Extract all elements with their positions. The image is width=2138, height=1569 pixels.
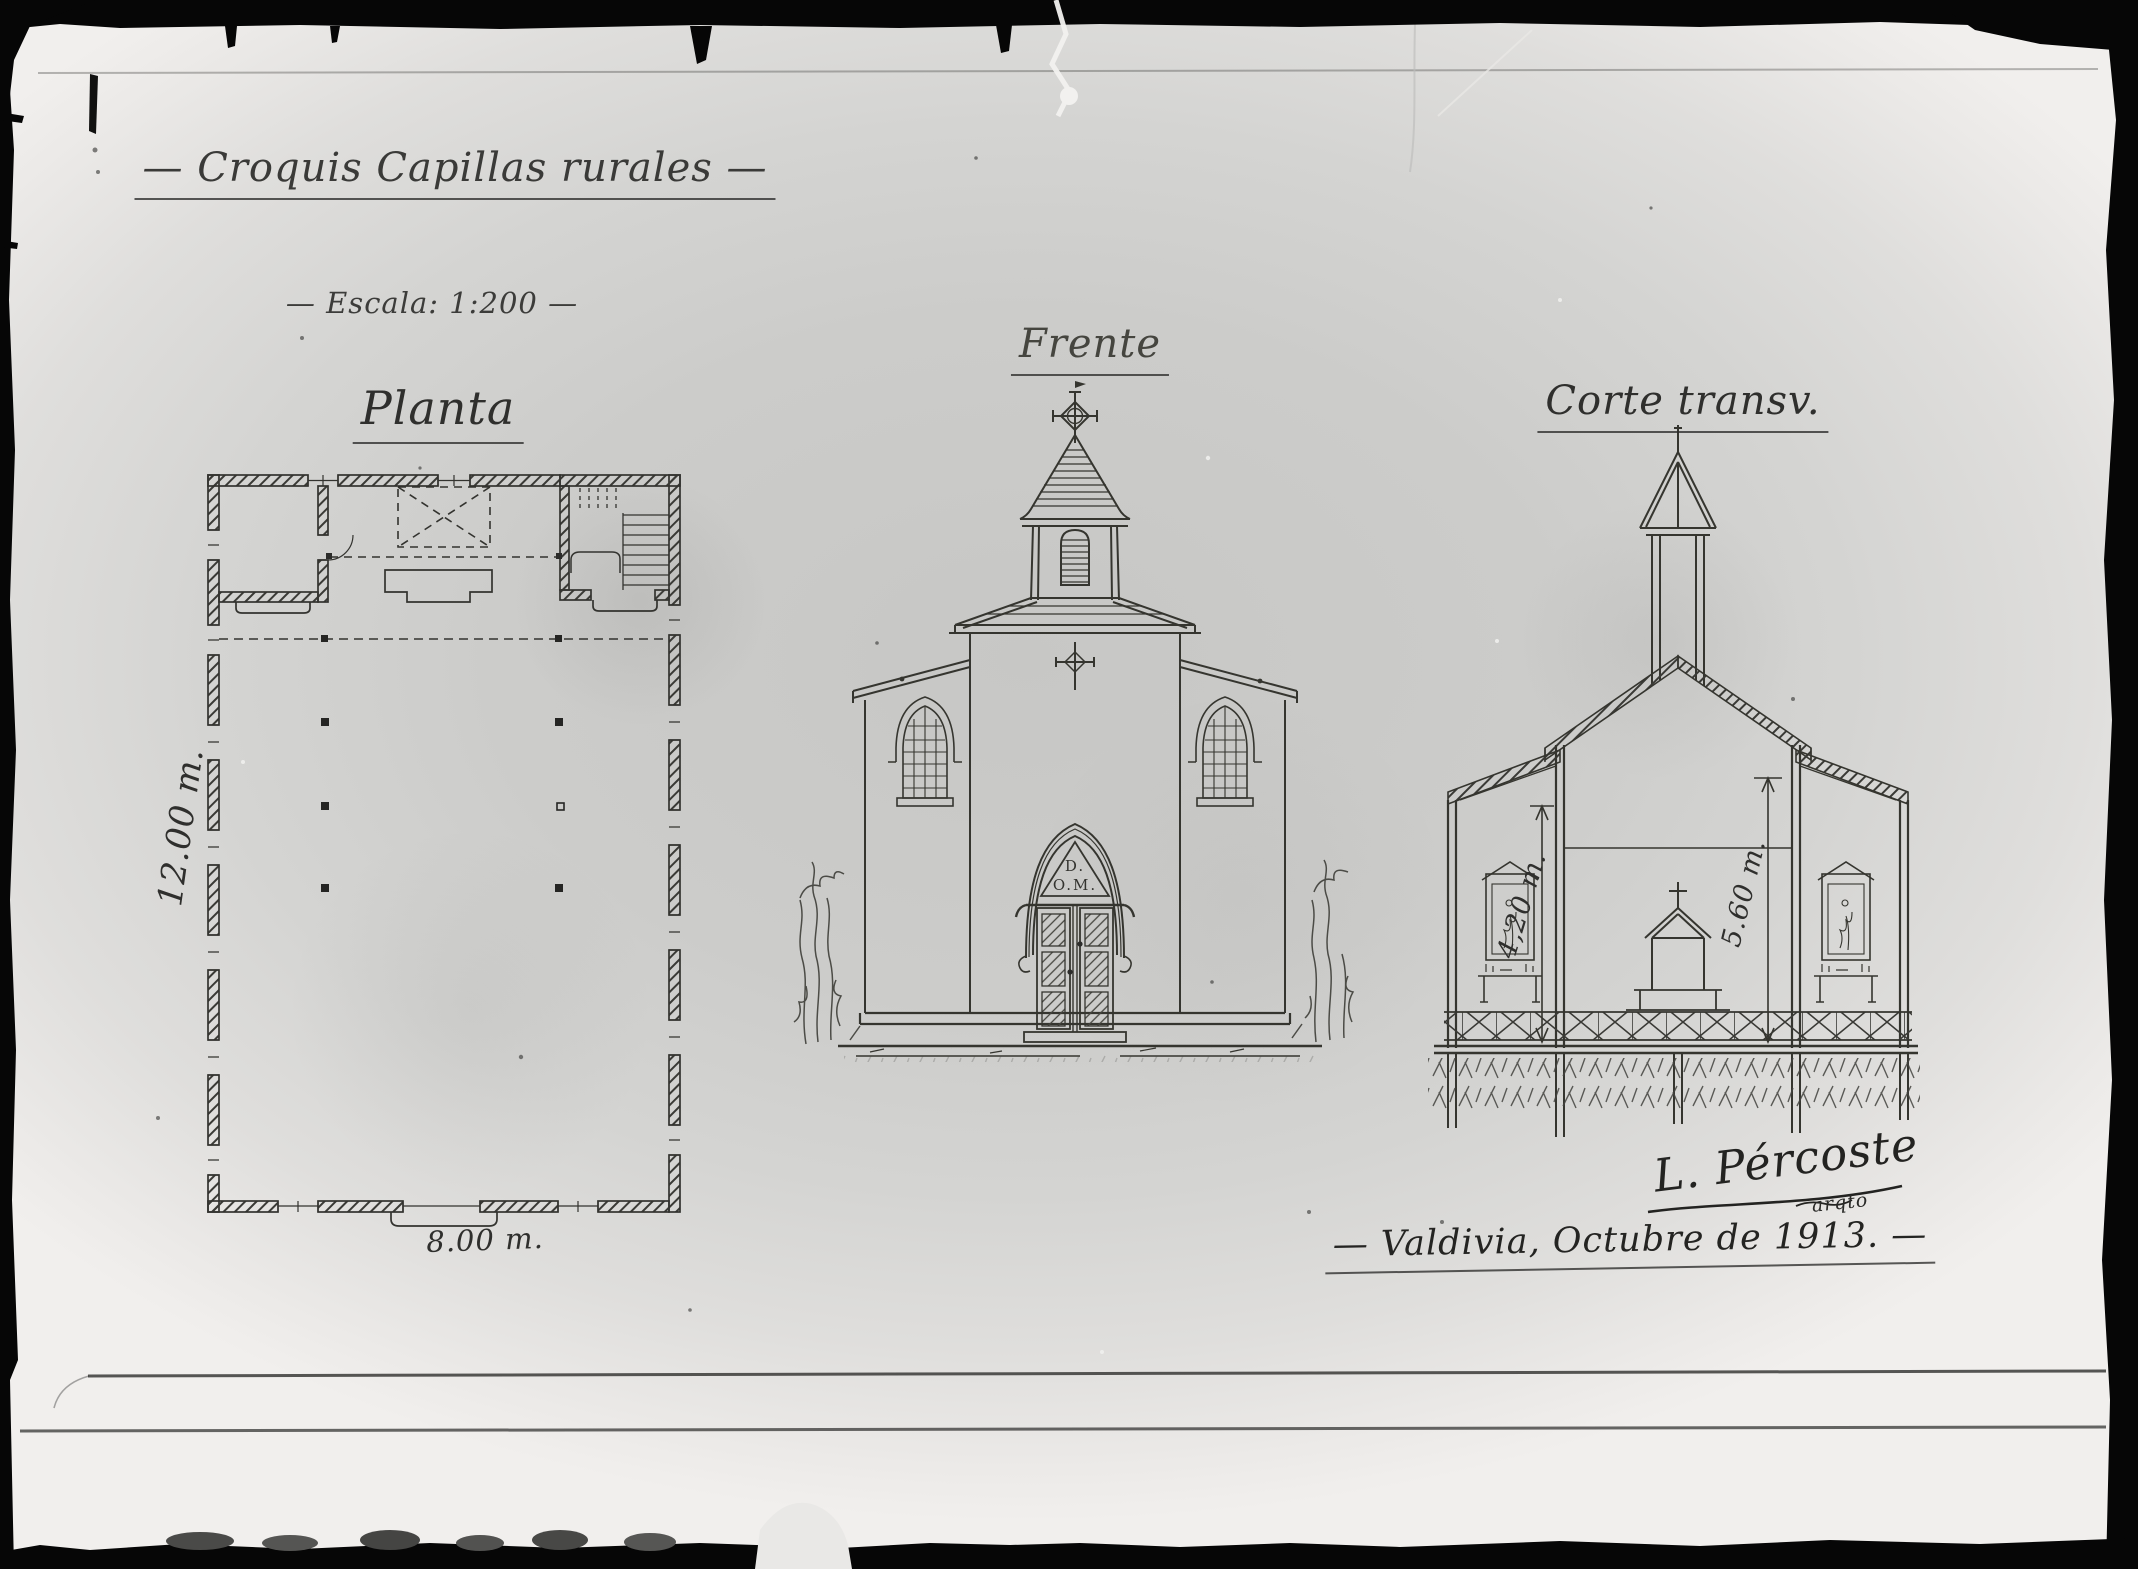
- spire: [1020, 435, 1130, 526]
- side-window-right: [1188, 697, 1262, 806]
- floor-and-foundation: [1428, 1046, 1920, 1137]
- gable-cross-icon: [1056, 642, 1094, 690]
- plan-drawing: [208, 475, 680, 1226]
- sheet-title-text: — Croquis Capillas rurales —: [134, 145, 775, 200]
- belfry: [1031, 526, 1119, 600]
- cross-section-drawing: [1428, 425, 1920, 1137]
- section-main-roof: [1545, 656, 1811, 762]
- entrance-arch: [1019, 824, 1131, 972]
- tower-footprint: [398, 487, 490, 547]
- front-elevation-label-text: Frente: [1011, 321, 1169, 376]
- front-elevation-drawing: [794, 381, 1353, 1062]
- section-aisle-roofs: [1448, 750, 1908, 804]
- cross-section-label: Corte transv.: [1537, 378, 1828, 424]
- tree-sketch-right: [1292, 860, 1353, 1042]
- plan-label-text: Planta: [353, 381, 524, 444]
- plan-columns: [321, 635, 564, 892]
- plan-width-dimension: 8.00 m.: [426, 1221, 545, 1259]
- communion-railing: [1444, 1012, 1912, 1040]
- pediment-inscription-line1: D.: [1065, 857, 1085, 875]
- scratches-and-specks: [93, 0, 1796, 1354]
- stair-step: [593, 600, 657, 611]
- sheet-scale: — Escala: 1:200 —: [286, 286, 578, 320]
- shrine-right: [1814, 862, 1878, 1002]
- cross-finial-icon: [1053, 381, 1097, 443]
- altar-platform: [385, 570, 492, 602]
- staircase: [571, 488, 669, 590]
- sheet-scale-text: — Escala: 1:200 —: [286, 286, 578, 320]
- main-hip-roof: [949, 598, 1201, 633]
- pediment-inscription-line2: O.M.: [1053, 876, 1097, 894]
- ground-line: [838, 1046, 1322, 1062]
- altar: [1626, 882, 1730, 1010]
- side-window-left: [888, 697, 962, 806]
- plan-window-marks: [208, 475, 680, 1212]
- plan-walls: [208, 475, 680, 1212]
- sheet-title: — Croquis Capillas rurales —: [134, 145, 775, 191]
- front-elevation-label: Frente: [1011, 321, 1169, 367]
- section-spire: [1640, 425, 1716, 535]
- cross-section-label-text: Corte transv.: [1537, 378, 1828, 433]
- chancel-step: [236, 602, 310, 613]
- photograph-plate: — Croquis Capillas rurales — — Escala: 1…: [0, 0, 2138, 1569]
- tree-sketch-left: [794, 862, 860, 1044]
- plan-label: Planta: [353, 381, 524, 435]
- plate-border: [0, 0, 2138, 1569]
